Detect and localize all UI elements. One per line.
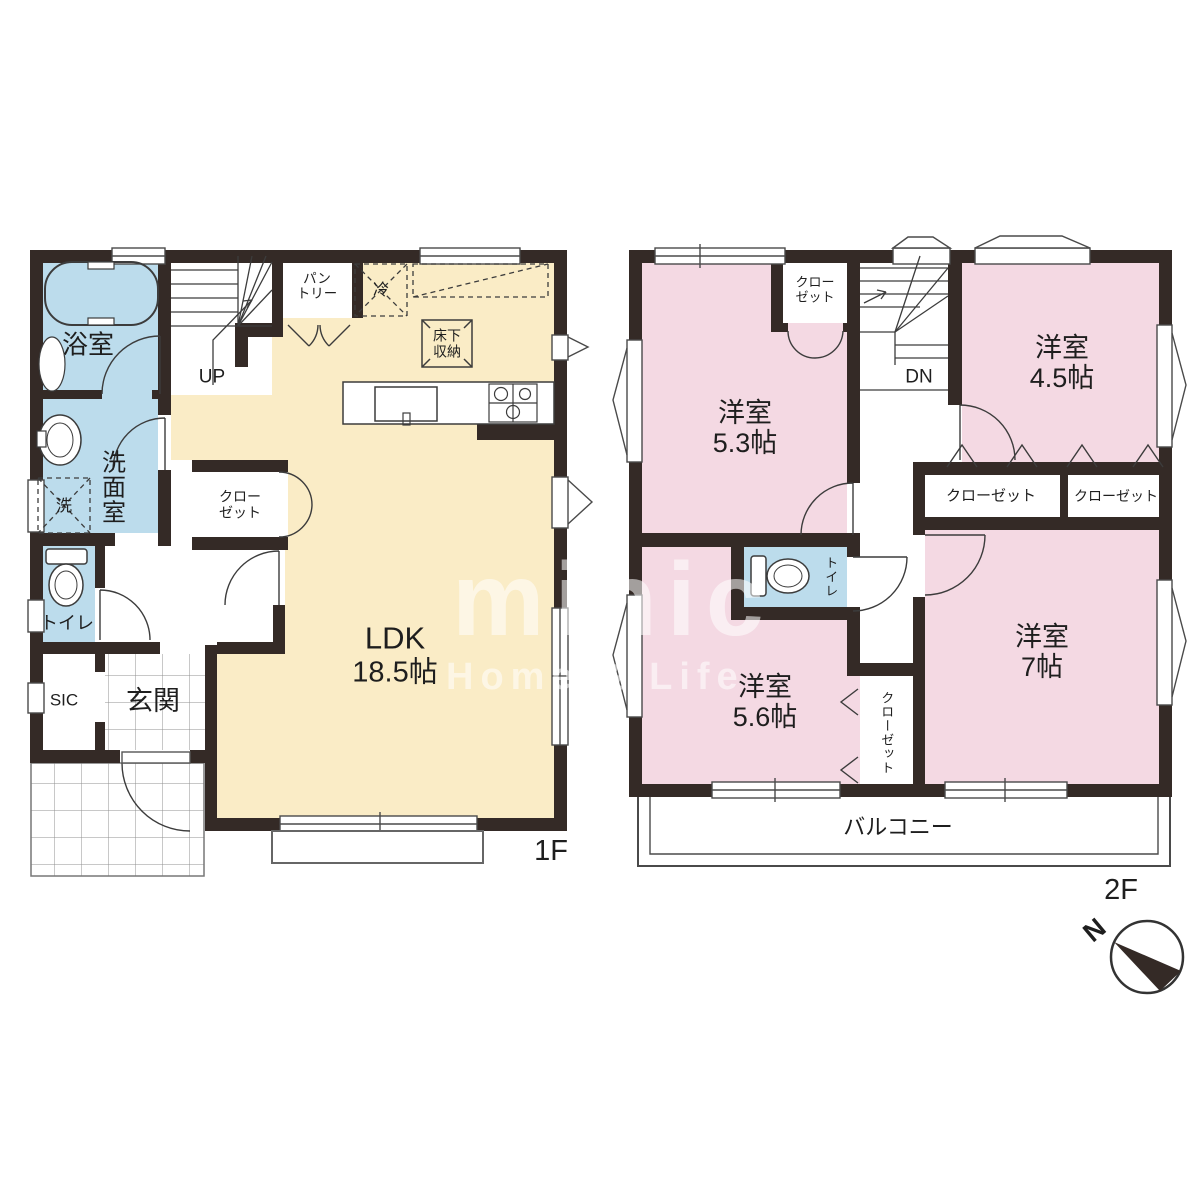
- label-ldk: LDK 18.5帖: [352, 621, 437, 688]
- label-room-4-5: 洋室 4.5帖: [1030, 333, 1095, 393]
- label-fridge: 冷: [373, 282, 389, 300]
- ldk-name: LDK: [352, 621, 437, 656]
- label-underfloor-storage: 床下 収納: [433, 328, 461, 359]
- label-closet-2f-right: クローゼット: [1074, 489, 1158, 505]
- label-entrance: 玄関: [126, 686, 180, 716]
- label-balcony: バルコニー: [843, 816, 953, 841]
- label-closet-2f-left: クローゼット: [946, 489, 1036, 506]
- ldk-size: 18.5帖: [352, 656, 437, 688]
- label-closet-2f-top: クロー ゼット: [795, 275, 834, 304]
- label-room-5-6: 洋室 5.6帖: [733, 672, 798, 732]
- label-stairs-up: UP: [199, 366, 225, 387]
- label-toilet-2f: トイレ: [823, 556, 838, 598]
- toilet-icon-2f: [751, 556, 809, 596]
- label-pantry: パン トリー: [297, 271, 338, 301]
- label-room-7: 洋室 7帖: [1015, 622, 1069, 682]
- entrance-porch: [31, 763, 204, 876]
- floorplan-image: 浴室 洗面室 洗 トイレ SIC 玄関 LDK 18.5帖 パン トリー 冷 床…: [0, 0, 1200, 1200]
- label-closet-1f: クロー ゼット: [219, 489, 261, 520]
- kitchen-counter: [343, 382, 554, 425]
- label-laundry: 洗: [56, 498, 72, 516]
- label-sic: SIC: [50, 690, 78, 709]
- floor1-fills: [43, 256, 561, 824]
- label-floor1: 1F: [534, 835, 568, 867]
- label-stairs-down: DN: [905, 366, 932, 387]
- label-toilet-1f: トイレ: [40, 613, 94, 633]
- label-bath: 浴室: [62, 330, 114, 359]
- label-washroom: 洗面室: [97, 450, 124, 525]
- compass-icon: [1111, 921, 1183, 993]
- label-room-5-3: 洋室 5.3帖: [713, 398, 778, 458]
- floor2-plan: [613, 236, 1186, 866]
- label-floor2: 2F: [1104, 874, 1138, 906]
- terrace-deck: [272, 831, 483, 863]
- floorplan-drawing: [0, 0, 1200, 1200]
- label-closet-2f-side: クローゼット: [879, 691, 894, 775]
